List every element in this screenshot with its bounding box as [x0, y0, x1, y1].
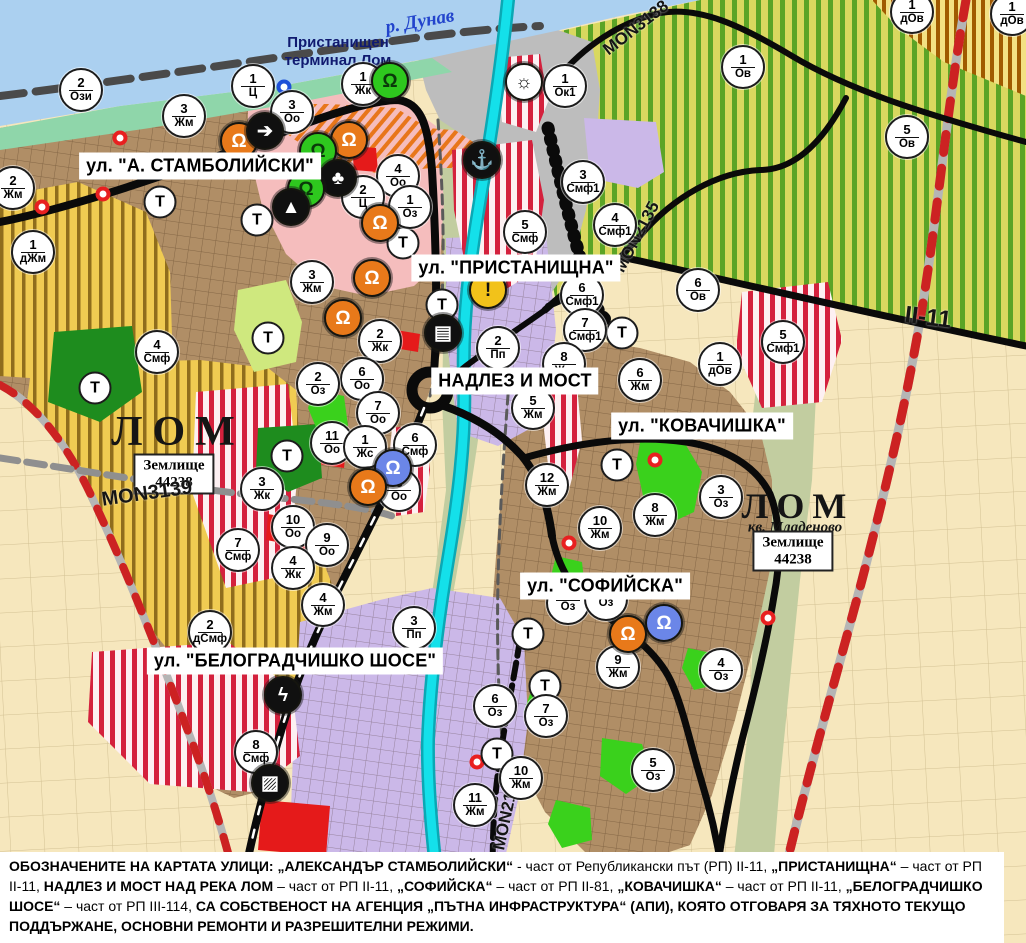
footer-segment: – част от РП II-81, [493, 878, 618, 894]
zone-marker-part: 3 [258, 475, 265, 488]
zone-marker-part: Оз [539, 718, 554, 730]
zone-marker-part: 1 [561, 72, 568, 85]
street-label-nadlez-i-most: НАДЛЕЗ И МОСТ [431, 368, 598, 395]
map-canvas: р. Дунав Пристанищен терминал Лом ЛОМ Зе… [0, 0, 1026, 943]
zone-marker-5-Смф: 5Смф [503, 210, 547, 254]
red-dot-marker [96, 187, 111, 202]
zone-marker-part: 7 [542, 702, 549, 715]
zone-marker-part: 4 [289, 554, 296, 567]
zone-marker-part: Оо [284, 114, 300, 126]
zone-marker-part: 7 [374, 399, 381, 412]
zone-marker-2-Пп: 2Пп [476, 326, 520, 370]
zone-marker-part: 10 [514, 764, 528, 777]
footer-segment: НАДЛЕЗ И МОСТ НАД РЕКА ЛОМ [44, 878, 273, 894]
zone-marker-part: 5 [649, 756, 656, 769]
zone-marker-6-Оз: 6Оз [473, 684, 517, 728]
zone-marker-part: Жм [314, 607, 333, 619]
harbor-sun-icon: ☼ [505, 63, 543, 101]
zone-marker-part: 7 [581, 316, 588, 329]
zone-marker-part: Жм [591, 530, 610, 542]
zone-marker-10-Жм: 10Жм [499, 756, 543, 800]
zone-marker-part: Оз [403, 209, 418, 221]
monument-orange-icon: Ω [324, 299, 362, 337]
zone-marker-part: Оз [646, 772, 661, 784]
power-icon: ϟ [264, 676, 302, 714]
zone-marker-4-Оз: 4Оз [699, 648, 743, 692]
zone-marker-part: Смф [144, 354, 171, 366]
land-parcel-box-east: Землище 44238 [752, 531, 833, 572]
zone-marker-12-Жм: 12Жм [525, 463, 569, 507]
zone-marker-part: Оо [324, 445, 340, 457]
zone-marker-part: дСмф [193, 634, 227, 646]
zone-marker-part: Жм [4, 190, 23, 202]
zone-marker-part: 2 [206, 618, 213, 631]
zone-marker-part: 3 [410, 614, 417, 627]
zone-marker-part: 8 [560, 350, 567, 363]
zone-marker-4-Жк: 4Жк [271, 546, 315, 590]
zone-marker-part: Оз [714, 499, 729, 511]
zone-marker-7-Смф: 7Смф [216, 528, 260, 572]
zone-marker-part: 6 [411, 431, 418, 444]
street-label-sofiyska: ул. "СОФИЙСКА" [520, 573, 690, 600]
zone-marker-part: 3 [579, 168, 586, 181]
zone-marker-part: 4 [394, 162, 401, 175]
zone-marker-2-Ози: 2Ози [59, 68, 103, 112]
zone-marker-part: 1 [29, 238, 36, 251]
road-label-ii-11: II-11 [903, 301, 953, 334]
zone-marker-part: 2 [376, 327, 383, 340]
transport-t-marker: Т [601, 449, 634, 482]
monument-green-icon: Ω [371, 62, 409, 100]
zone-marker-part: 10 [286, 513, 300, 526]
transport-t-marker: Т [79, 372, 112, 405]
transport-t-marker: Т [512, 618, 545, 651]
zone-marker-part: 2 [314, 370, 321, 383]
zone-marker-part: Смф1 [566, 184, 599, 196]
zone-marker-part: Ов [899, 139, 915, 151]
zone-marker-part: 1 [1008, 0, 1015, 13]
zone-marker-part: 9 [614, 653, 621, 666]
footer-text: ОБОЗНАЧЕНИТЕ НА КАРТАТА УЛИЦИ: „АЛЕКСАНД… [9, 857, 995, 937]
zone-marker-5-Ов: 5Ов [885, 115, 929, 159]
city-label-lom-west: ЛОМ [111, 408, 245, 456]
zone-marker-part: Оо [370, 415, 386, 427]
red-dot-marker [113, 131, 128, 146]
footer-segment: „ПРИСТАНИЩНА“ [771, 858, 897, 874]
monument-orange-icon: Ω [361, 204, 399, 242]
road-label-mon3138: MON3138 [599, 0, 672, 60]
zone-marker-part: 2 [9, 174, 16, 187]
arrow-icon: ➔ [246, 112, 284, 150]
zone-marker-part: 12 [540, 471, 554, 484]
zone-marker-part: Жм [538, 487, 557, 499]
zone-marker-part: Жм [512, 780, 531, 792]
zone-marker-part: Жм [303, 284, 322, 296]
zone-marker-4-Смф: 4Смф [135, 330, 179, 374]
monument-blue-icon: Ω [645, 604, 683, 642]
zone-marker-part: Ов [735, 69, 751, 81]
footer-segment: „СОФИЙСКА“ [397, 878, 493, 894]
zone-marker-part: 1 [361, 433, 368, 446]
zone-marker-3-Жм: 3Жм [290, 260, 334, 304]
zone-marker-part: Оз [311, 386, 326, 398]
zone-marker-4-Жм: 4Жм [301, 583, 345, 627]
zone-marker-part: Жк [372, 343, 388, 355]
zone-marker-part: Смф [225, 552, 252, 564]
footer-note: ОБОЗНАЧЕНИТЕ НА КАРТАТА УЛИЦИ: „АЛЕКСАНД… [0, 852, 1004, 943]
road-label-mon3139: MON3139 [100, 476, 193, 511]
zone-marker-part: дОв [900, 14, 923, 26]
transport-t-marker: Т [144, 186, 177, 219]
zone-marker-2-Жм: 2Жм [0, 166, 35, 210]
annotation-layer: р. Дунав Пристанищен терминал Лом ЛОМ Зе… [0, 0, 1026, 943]
transport-t-marker: Т [252, 322, 285, 355]
land-parcel-west-line1: Землище [143, 458, 204, 475]
zone-marker-part: Оз [488, 708, 503, 720]
footer-segment: „КОВАЧИШКА“ [617, 878, 722, 894]
zone-marker-part: 4 [319, 591, 326, 604]
zone-marker-part: 6 [578, 281, 585, 294]
zone-marker-part: 1 [406, 193, 413, 206]
zone-marker-part: Жм [466, 807, 485, 819]
transport-t-marker: Т [606, 317, 639, 350]
zone-marker-part: Смф1 [766, 344, 799, 356]
zone-marker-part: Смф1 [565, 297, 598, 309]
street-label-kovachishka: ул. "КОВАЧИШКА" [611, 413, 793, 440]
zone-marker-part: 5 [779, 328, 786, 341]
zone-marker-1-дЖм: 1дЖм [11, 230, 55, 274]
truck-icon: ▤ [424, 314, 462, 352]
zone-marker-part: 6 [636, 366, 643, 379]
monument-orange-icon: Ω [609, 615, 647, 653]
footer-segment: – част от РП III-114, [60, 898, 195, 914]
zone-marker-part: 6 [358, 365, 365, 378]
zone-marker-1-дОв: 1дОв [890, 0, 934, 34]
zone-marker-part: 4 [611, 211, 618, 224]
zone-marker-part: Жк [254, 491, 270, 503]
zone-marker-part: 1 [359, 70, 366, 83]
zone-marker-part: 10 [593, 514, 607, 527]
zone-marker-1-Ов: 1Ов [721, 45, 765, 89]
zone-marker-part: Оз [714, 672, 729, 684]
zone-marker-1-дОв: 1дОв [990, 0, 1026, 36]
zone-marker-part: 5 [529, 394, 536, 407]
zone-marker-part: 8 [252, 738, 259, 751]
transport-t-marker: Т [241, 204, 274, 237]
zone-marker-part: 3 [308, 268, 315, 281]
zone-marker-part: Смф1 [598, 227, 631, 239]
zone-marker-11-Жм: 11Жм [453, 783, 497, 827]
zone-marker-part: Жк [285, 570, 301, 582]
zone-marker-part: Смф1 [568, 332, 601, 344]
zone-marker-part: Жм [175, 118, 194, 130]
zone-marker-part: 6 [491, 692, 498, 705]
zone-marker-1-Ц: 1Ц [231, 64, 275, 108]
zone-marker-part: Оо [391, 492, 407, 504]
zone-marker-1-дОв: 1дОв [698, 342, 742, 386]
zone-marker-3-Жм: 3Жм [162, 94, 206, 138]
zone-marker-part: Смф [512, 234, 539, 246]
zone-marker-part: дЖм [20, 254, 46, 266]
zone-marker-part: 2 [494, 334, 501, 347]
zone-marker-3-Жк: 3Жк [240, 467, 284, 511]
zone-marker-part: 6 [694, 276, 701, 289]
zone-marker-part: 1 [249, 72, 256, 85]
street-label-pristanishtna: ул. "ПРИСТАНИЩНА" [411, 255, 620, 282]
zone-marker-6-Ов: 6Ов [676, 268, 720, 312]
zone-marker-10-Жм: 10Жм [578, 506, 622, 550]
zone-marker-part: Оо [285, 529, 301, 541]
crossing-icon: ▨ [251, 764, 289, 802]
transport-t-marker: Т [271, 440, 304, 473]
zone-marker-part: 3 [180, 102, 187, 115]
zone-marker-part: 4 [717, 656, 724, 669]
zone-marker-part: 3 [717, 483, 724, 496]
zone-marker-part: Оо [354, 381, 370, 393]
zone-marker-part: Ов [690, 292, 706, 304]
zone-marker-part: Ок1 [554, 88, 575, 100]
zone-marker-part: Жм [609, 669, 628, 681]
zone-marker-2-Оз: 2Оз [296, 362, 340, 406]
zone-marker-part: Пп [406, 630, 421, 642]
red-dot-marker [35, 200, 50, 215]
zone-marker-part: Ози [70, 92, 92, 104]
red-dot-marker [562, 536, 577, 551]
zone-marker-part: Ц [249, 88, 257, 100]
zone-marker-part: Жм [524, 410, 543, 422]
zone-marker-5-Оз: 5Оз [631, 748, 675, 792]
footer-segment: – част от РП II-11, [273, 878, 397, 894]
zone-marker-part: 8 [651, 501, 658, 514]
zone-marker-part: 3 [288, 98, 295, 111]
zone-marker-part: 11 [325, 429, 339, 442]
zone-marker-part: Жс [357, 449, 374, 461]
zone-marker-6-Жм: 6Жм [618, 358, 662, 402]
zone-marker-part: Оз [561, 602, 576, 614]
anchor-icon: ⚓ [463, 141, 501, 179]
zone-marker-5-Смф1: 5Смф1 [761, 320, 805, 364]
zone-marker-7-Оз: 7Оз [524, 694, 568, 738]
footer-segment: - част от Републикански път (РП) II-11, [513, 858, 771, 874]
street-label-belogradchishko: ул. "БЕЛОГРАДЧИШКО ШОСЕ" [147, 648, 443, 675]
zone-marker-part: Оо [319, 547, 335, 559]
zone-marker-part: 1 [739, 53, 746, 66]
monument-orange-icon: Ω [353, 259, 391, 297]
zone-marker-3-Смф1: 3Смф1 [561, 160, 605, 204]
zone-marker-part: 11 [468, 791, 482, 804]
zone-marker-3-Пп: 3Пп [392, 606, 436, 650]
zone-marker-part: Жм [631, 382, 650, 394]
zone-marker-part: 1 [908, 0, 915, 11]
land-parcel-east-line1: Землище [762, 535, 823, 552]
zone-marker-part: 2 [359, 183, 366, 196]
zone-marker-part: 7 [234, 536, 241, 549]
zone-marker-part: 9 [323, 531, 330, 544]
zone-marker-part: Пп [490, 350, 505, 362]
land-parcel-east-line2: 44238 [762, 551, 823, 568]
zone-marker-part: 5 [521, 218, 528, 231]
red-dot-marker [761, 611, 776, 626]
zone-marker-part: 4 [153, 338, 160, 351]
peak-icon: ▲ [272, 188, 310, 226]
zone-marker-part: 2 [77, 76, 84, 89]
zone-marker-1-Ок1: 1Ок1 [543, 64, 587, 108]
street-label-stamboliyski: ул. "А. СТАМБОЛИЙСКИ" [79, 153, 321, 180]
zone-marker-part: 5 [903, 123, 910, 136]
zone-marker-part: дОв [1000, 16, 1023, 28]
zone-marker-part: Жм [646, 517, 665, 529]
zone-marker-3-Оз: 3Оз [699, 475, 743, 519]
zone-marker-4-Смф1: 4Смф1 [593, 203, 637, 247]
monument-orange-icon: Ω [349, 468, 387, 506]
red-dot-marker [648, 453, 663, 468]
zone-marker-part: 1 [716, 350, 723, 363]
footer-segment: ОБОЗНАЧЕНИТЕ НА КАРТАТА УЛИЦИ: „АЛЕКСАНД… [9, 858, 513, 874]
zone-marker-part: дОв [708, 366, 731, 378]
footer-segment: – част от РП II-11, [722, 878, 846, 894]
zone-marker-8-Жм: 8Жм [633, 493, 677, 537]
zone-marker-part: Жк [355, 86, 371, 98]
